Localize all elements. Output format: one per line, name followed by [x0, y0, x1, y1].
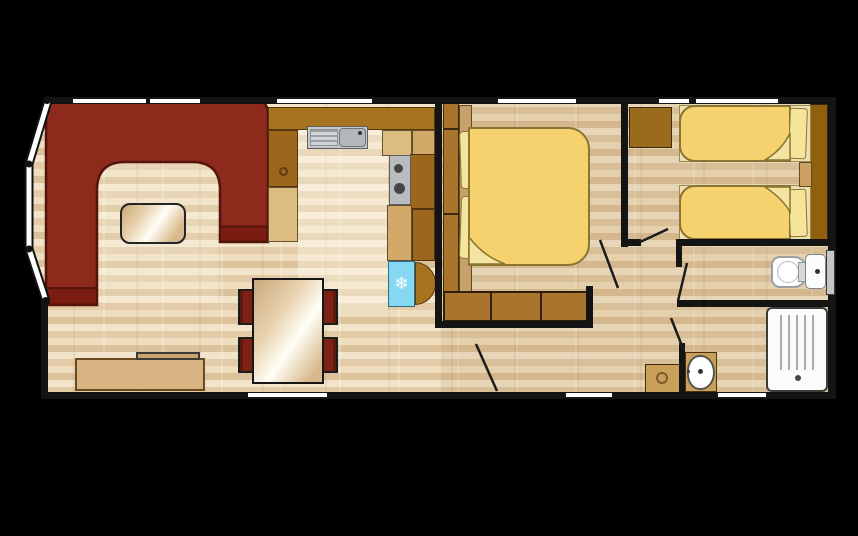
floor-plan: ❄: [0, 0, 858, 536]
duvet-fold: [469, 237, 505, 264]
wc-door-leaf: [678, 263, 687, 301]
entrance-door-leaf: [476, 344, 497, 391]
bay-window-joint: [26, 246, 33, 253]
shower-door-leaf: [671, 318, 684, 351]
bay-window-joint: [43, 96, 51, 104]
bay-window-joint: [26, 161, 33, 168]
bay-window-joint: [42, 297, 50, 305]
plan-line-overlay: [0, 0, 858, 536]
duvet-fold: [765, 133, 790, 160]
master-bedroom-door-leaf: [600, 240, 618, 288]
duvet-fold: [765, 187, 790, 212]
twin-bedroom-door-leaf: [638, 229, 668, 243]
